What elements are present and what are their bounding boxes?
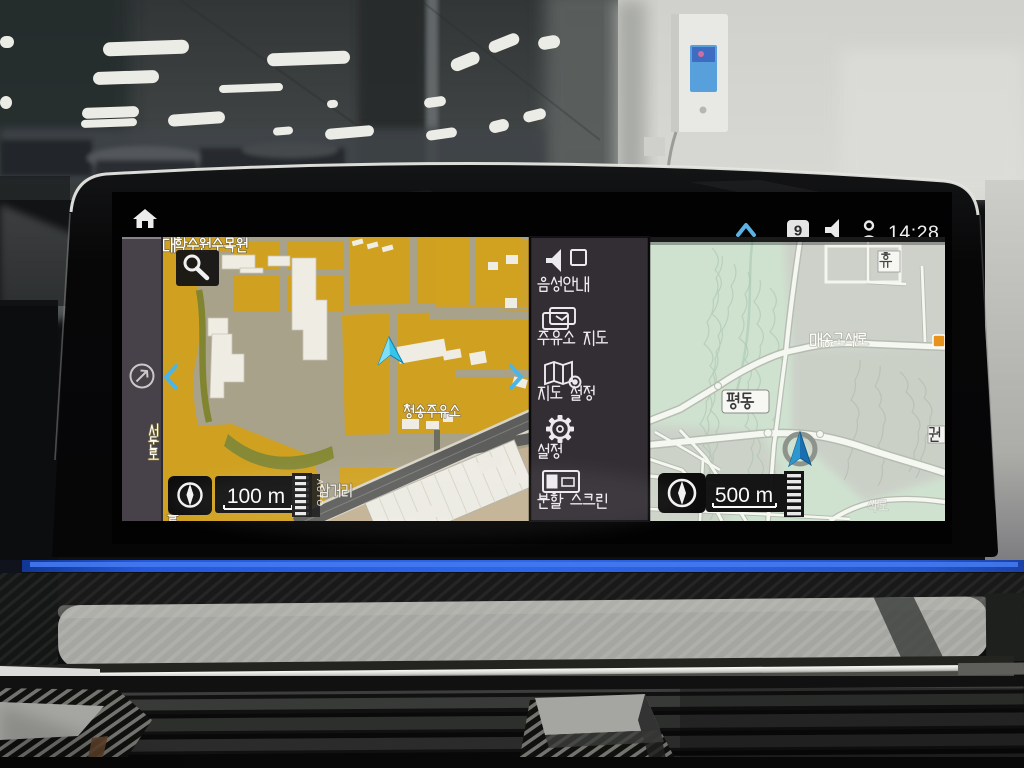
svg-text:9: 9 — [794, 223, 802, 240]
svg-text:500 m: 500 m — [715, 484, 773, 507]
